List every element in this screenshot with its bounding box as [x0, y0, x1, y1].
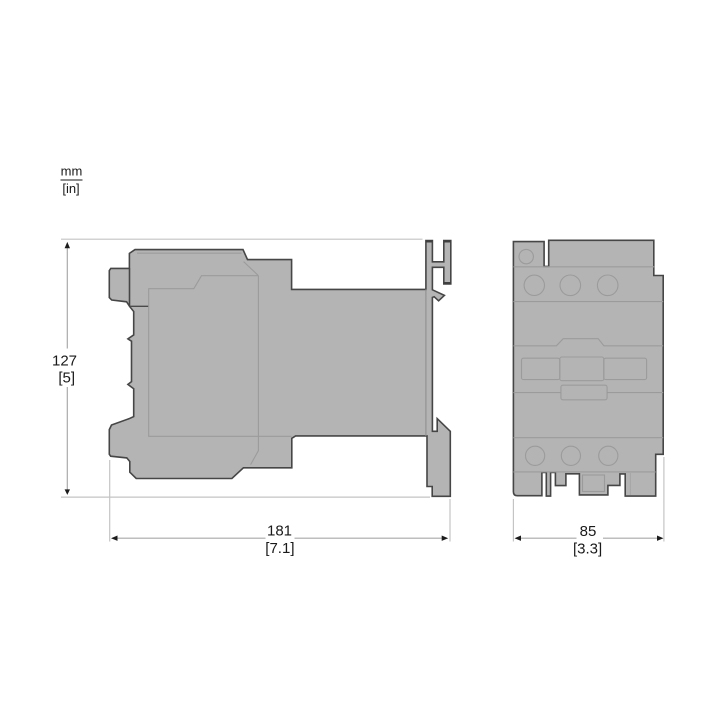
- svg-text:127: 127: [52, 353, 77, 370]
- svg-text:[7.1]: [7.1]: [265, 540, 294, 557]
- svg-text:181: 181: [267, 522, 292, 539]
- svg-text:85: 85: [580, 523, 597, 540]
- svg-text:[3.3]: [3.3]: [573, 541, 602, 558]
- svg-text:mm: mm: [61, 164, 83, 179]
- svg-text:[5]: [5]: [58, 370, 75, 387]
- svg-text:[in]: [in]: [62, 181, 79, 196]
